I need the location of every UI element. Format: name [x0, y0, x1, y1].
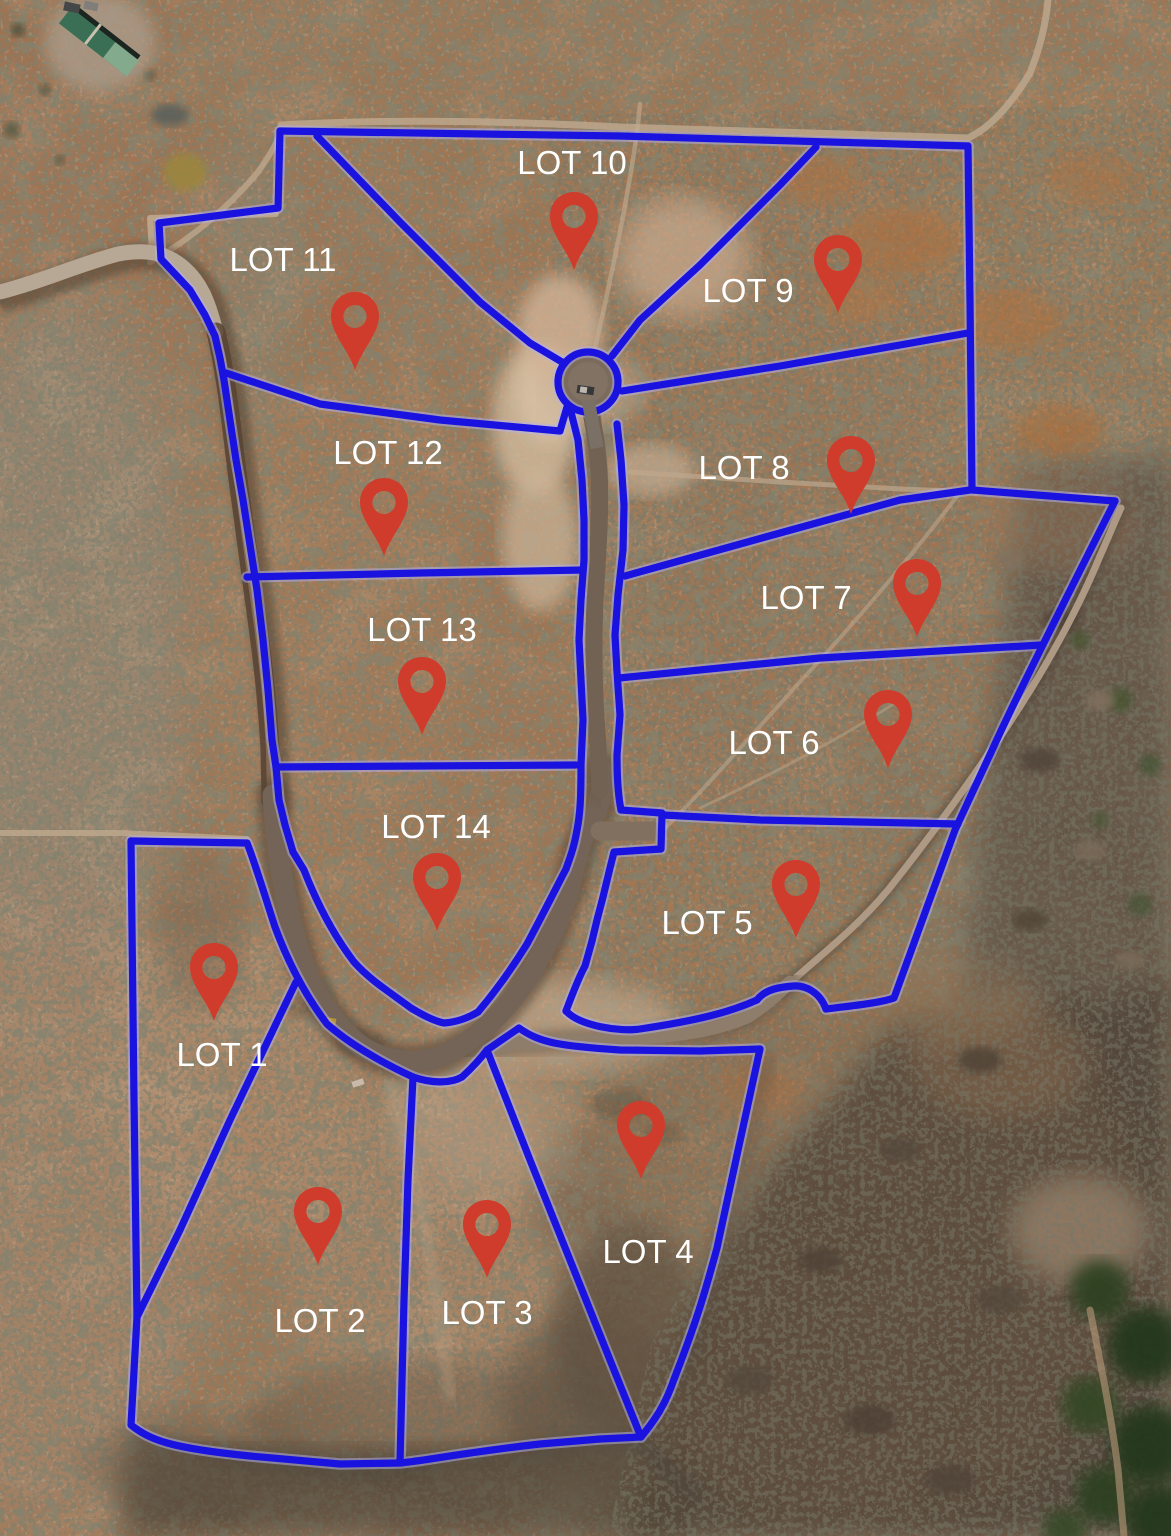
svg-text:LOT 14: LOT 14 — [381, 808, 490, 845]
svg-text:LOT 10: LOT 10 — [517, 144, 626, 181]
svg-text:LOT 11: LOT 11 — [229, 241, 336, 278]
svg-text:LOT 13: LOT 13 — [367, 611, 476, 648]
svg-text:LOT 6: LOT 6 — [728, 724, 819, 761]
svg-text:LOT 12: LOT 12 — [333, 434, 442, 471]
svg-text:LOT 3: LOT 3 — [441, 1294, 532, 1331]
svg-text:LOT 4: LOT 4 — [602, 1233, 693, 1270]
svg-text:LOT 1: LOT 1 — [176, 1036, 267, 1073]
svg-text:LOT 5: LOT 5 — [661, 904, 752, 941]
svg-text:LOT 2: LOT 2 — [274, 1302, 365, 1339]
svg-text:LOT 9: LOT 9 — [702, 272, 793, 309]
svg-text:LOT 8: LOT 8 — [698, 449, 789, 486]
svg-text:LOT 7: LOT 7 — [760, 579, 851, 616]
